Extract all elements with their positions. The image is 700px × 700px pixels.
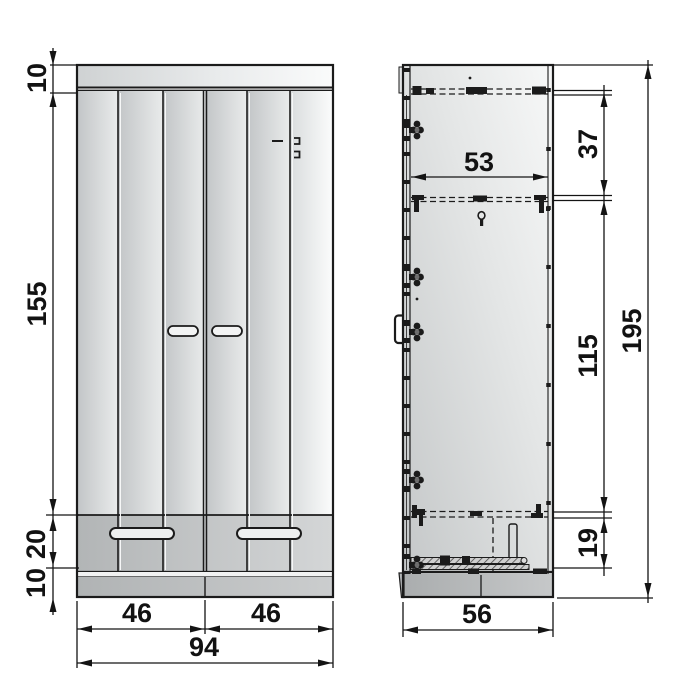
technical-drawing-canvas: 10 155 20 10 46 46 94 53 <box>0 0 700 700</box>
side-view <box>395 65 553 598</box>
left-drawer-handle <box>110 528 174 539</box>
dim-total-depth-group: 56 <box>403 599 553 637</box>
dim-middle-section: 115 <box>573 334 603 378</box>
dim-total-width: 94 <box>189 632 219 662</box>
dims-right-chain: 37 115 19 <box>553 85 612 576</box>
dim-drawer-section: 19 <box>573 528 603 558</box>
side-plinth <box>399 569 553 598</box>
dim-left-door-width: 46 <box>122 598 152 628</box>
dim-door-height: 155 <box>22 281 52 326</box>
dims-front-widths: 46 46 94 <box>77 598 333 668</box>
dim-inner-depth: 53 <box>464 147 494 177</box>
dim-total-height: 195 <box>617 308 647 353</box>
front-doors <box>77 91 333 515</box>
wardrobe-dimension-drawing: 10 155 20 10 46 46 94 53 <box>0 0 700 700</box>
dim-drawer-height: 20 <box>21 529 51 559</box>
front-top-panel <box>77 65 333 88</box>
left-door-handle <box>168 326 198 336</box>
dim-upper-section: 37 <box>573 129 603 159</box>
right-drawer-handle <box>237 528 301 539</box>
dim-right-door-width: 46 <box>251 598 281 628</box>
dim-total-depth: 56 <box>462 599 492 629</box>
right-door-handle <box>212 326 242 336</box>
front-drawers <box>77 515 333 572</box>
dims-left-chain: 10 155 20 10 <box>21 48 79 615</box>
dim-top-panel-height: 10 <box>22 63 52 93</box>
dim-plinth-height: 10 <box>21 568 51 598</box>
front-shadow-gap <box>77 572 333 577</box>
front-view <box>77 65 333 597</box>
